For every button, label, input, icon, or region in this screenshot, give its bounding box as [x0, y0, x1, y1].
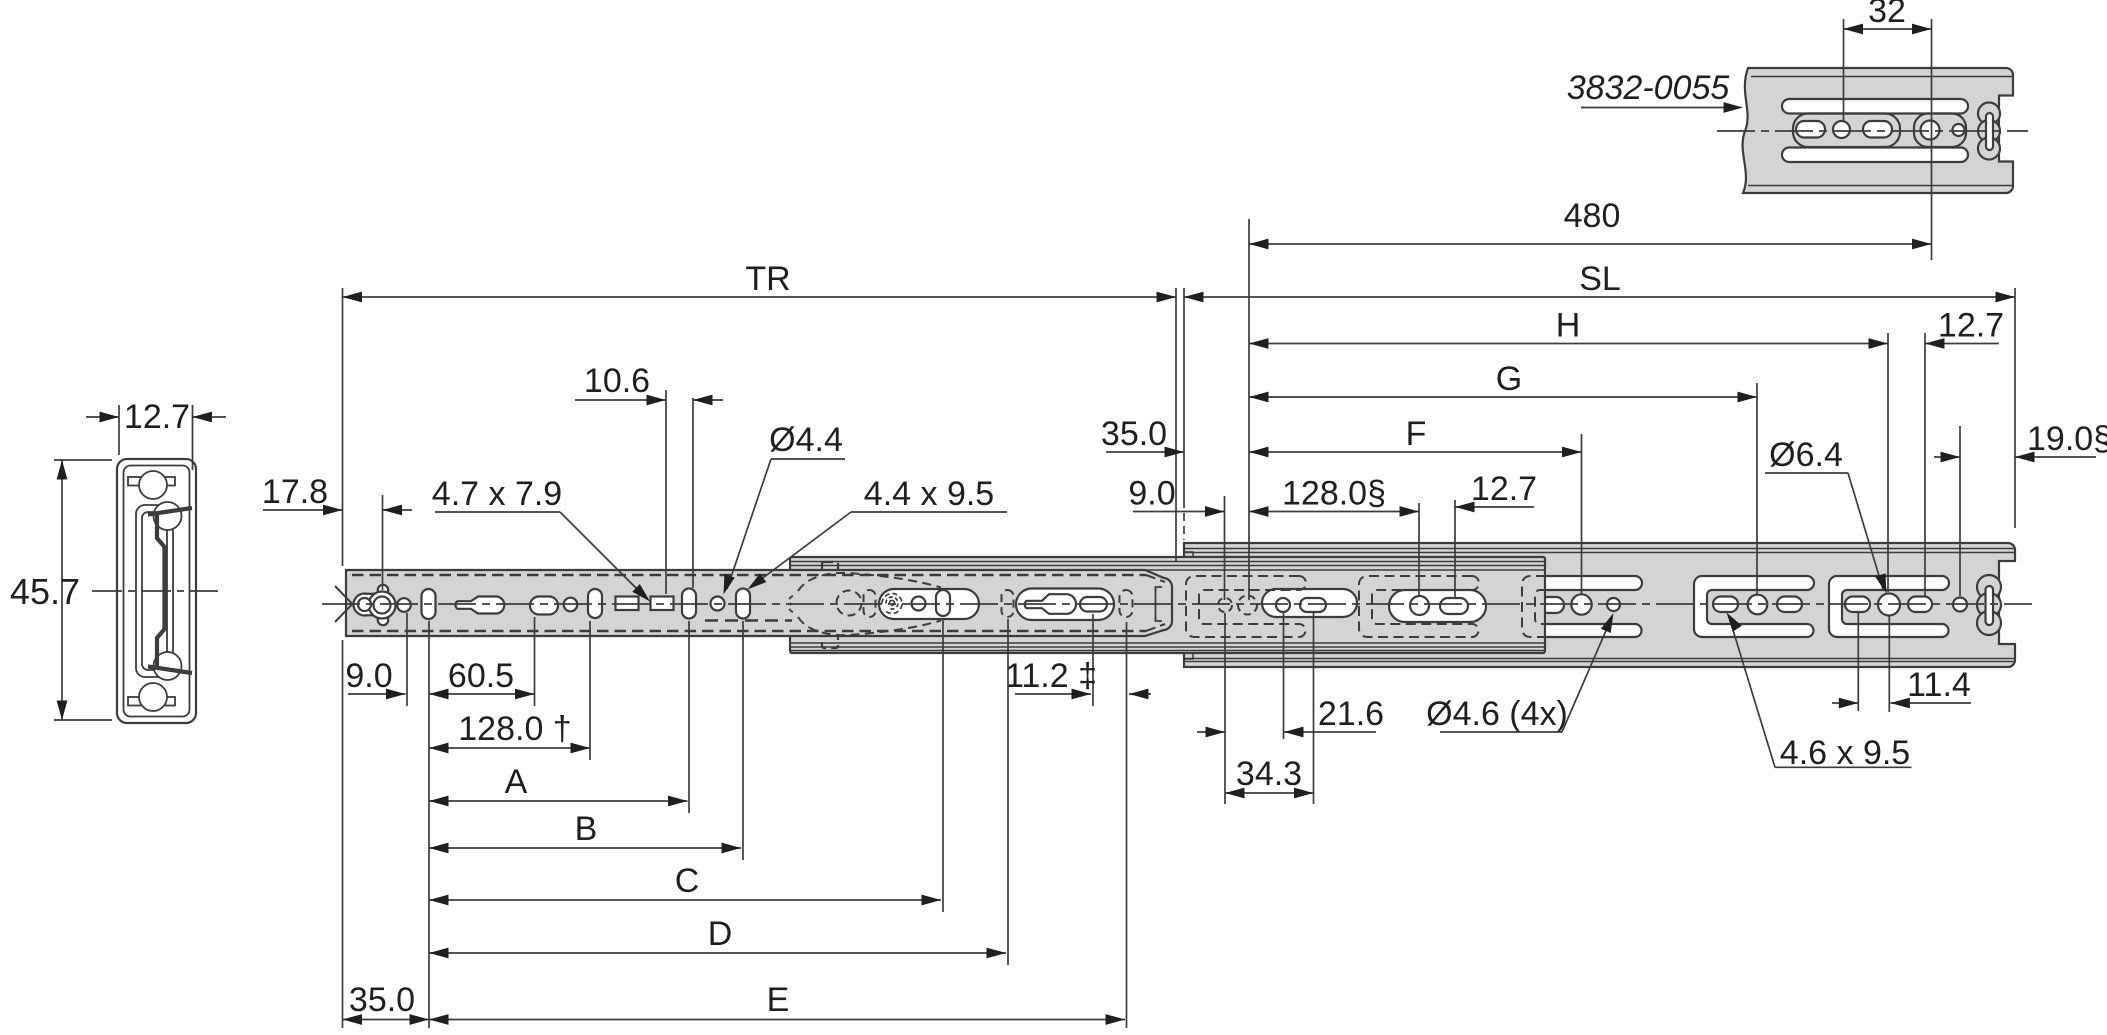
svg-text:480: 480 — [1564, 197, 1621, 235]
svg-text:12.7: 12.7 — [124, 398, 190, 436]
svg-text:34.3: 34.3 — [1236, 755, 1302, 793]
svg-text:F: F — [1406, 415, 1427, 453]
svg-text:32: 32 — [1868, 0, 1906, 30]
svg-text:21.6: 21.6 — [1318, 695, 1384, 733]
svg-text:128.0 †: 128.0 † — [458, 710, 571, 748]
svg-text:3832-0055: 3832-0055 — [1567, 69, 1730, 107]
svg-text:B: B — [575, 810, 598, 848]
svg-text:128.0§: 128.0§ — [1282, 475, 1386, 513]
svg-text:19.0§§: 19.0§§ — [2027, 420, 2107, 458]
svg-text:10.6: 10.6 — [584, 362, 650, 400]
svg-text:35.0: 35.0 — [1101, 415, 1167, 453]
svg-text:Ø4.4: Ø4.4 — [769, 421, 843, 459]
svg-text:G: G — [1496, 360, 1522, 398]
svg-text:17.8: 17.8 — [262, 473, 328, 511]
svg-text:Ø6.4: Ø6.4 — [1769, 436, 1843, 474]
svg-text:45.7: 45.7 — [10, 571, 80, 612]
svg-text:12.7: 12.7 — [1471, 470, 1537, 508]
svg-text:9.0: 9.0 — [1128, 475, 1175, 513]
svg-text:Ø4.6 (4x): Ø4.6 (4x) — [1426, 695, 1568, 733]
svg-text:60.5: 60.5 — [448, 657, 514, 695]
svg-text:TR: TR — [745, 260, 790, 298]
svg-text:4.4 x 9.5: 4.4 x 9.5 — [864, 475, 994, 513]
svg-text:12.7: 12.7 — [1938, 307, 2004, 345]
svg-text:11.4: 11.4 — [1907, 666, 1971, 704]
svg-text:E: E — [767, 981, 790, 1019]
svg-text:4.6 x 9.5: 4.6 x 9.5 — [1780, 734, 1910, 772]
svg-text:4.7 x 7.9: 4.7 x 7.9 — [432, 475, 562, 513]
svg-text:C: C — [675, 862, 700, 900]
svg-text:11.2 ‡: 11.2 ‡ — [1005, 657, 1097, 695]
svg-text:9.0: 9.0 — [345, 657, 392, 695]
svg-text:D: D — [708, 915, 733, 953]
svg-text:SL: SL — [1579, 260, 1621, 298]
svg-text:A: A — [505, 763, 528, 801]
svg-text:H: H — [1556, 307, 1581, 345]
svg-text:35.0: 35.0 — [349, 981, 415, 1019]
